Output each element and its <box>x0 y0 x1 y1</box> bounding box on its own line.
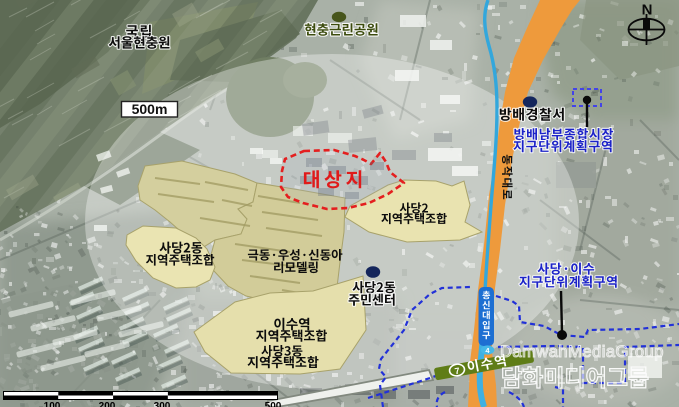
svg-text:DamwahMediaGroup: DamwahMediaGroup <box>500 343 664 361</box>
svg-text:500m: 500m <box>132 101 168 117</box>
svg-text:500: 500 <box>265 401 282 407</box>
svg-text:200: 200 <box>99 401 116 407</box>
svg-text:N: N <box>642 2 653 19</box>
svg-text:100: 100 <box>44 401 61 407</box>
svg-text:300: 300 <box>154 401 171 407</box>
